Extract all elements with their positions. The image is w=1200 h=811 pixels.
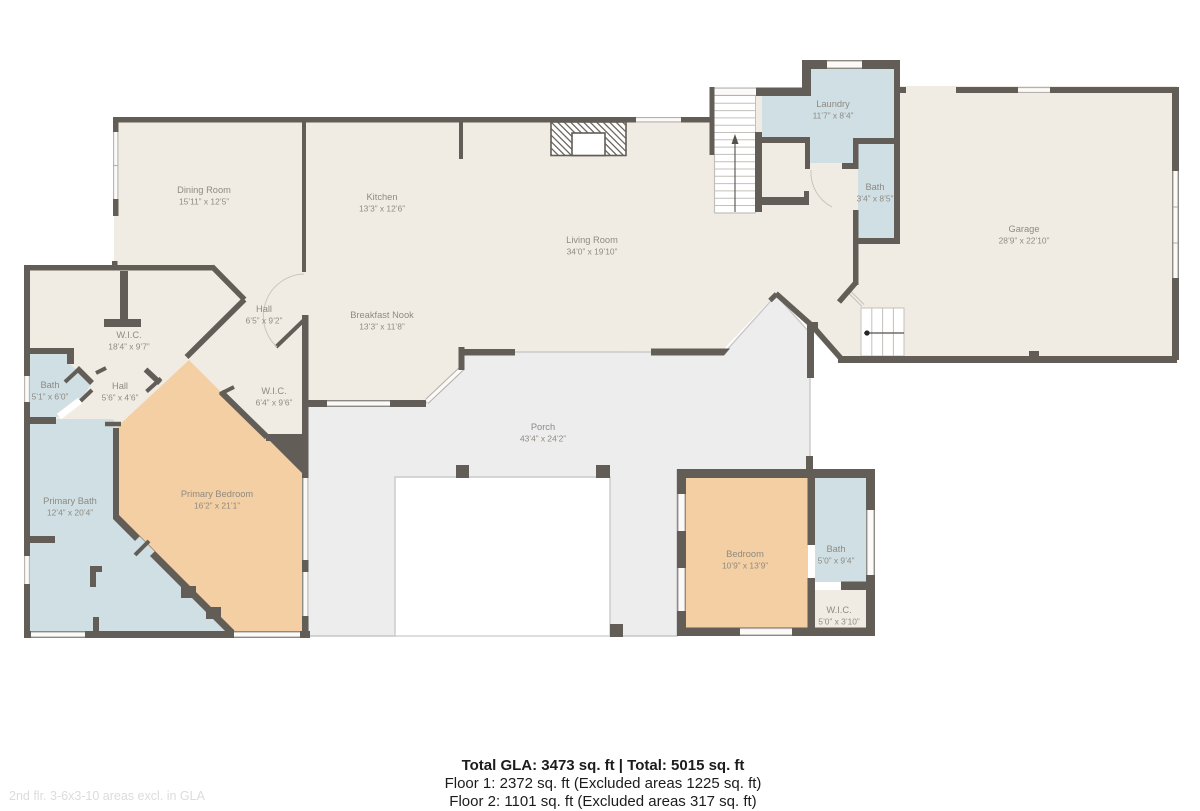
svg-text:5’6” x 4’6”: 5’6” x 4’6”: [102, 393, 139, 403]
svg-text:10’9” x 13’9”: 10’9” x 13’9”: [722, 561, 768, 571]
svg-text:W.I.C.: W.I.C.: [826, 605, 851, 615]
svg-text:Hall: Hall: [256, 304, 272, 314]
svg-text:11’7” x 8’4”: 11’7” x 8’4”: [813, 111, 854, 121]
svg-text:Hall: Hall: [112, 381, 128, 391]
svg-text:Kitchen: Kitchen: [366, 192, 397, 202]
svg-text:3’4” x 8’5”: 3’4” x 8’5”: [857, 194, 894, 204]
svg-text:13’3” x 11’8”: 13’3” x 11’8”: [359, 322, 405, 332]
svg-text:Living Room: Living Room: [566, 235, 618, 245]
svg-text:13’3” x 12’6”: 13’3” x 12’6”: [359, 204, 405, 214]
svg-text:Bath: Bath: [826, 544, 845, 554]
svg-text:28’9” x 22’10”: 28’9” x 22’10”: [999, 236, 1050, 246]
svg-text:Primary Bath: Primary Bath: [43, 496, 97, 506]
svg-text:5’0” x 9’4”: 5’0” x 9’4”: [818, 556, 855, 566]
svg-text:Bath: Bath: [40, 380, 59, 390]
svg-text:15’11” x 12’5”: 15’11” x 12’5”: [179, 197, 229, 207]
svg-text:Laundry: Laundry: [816, 99, 850, 109]
svg-text:16’2” x 21’1”: 16’2” x 21’1”: [194, 501, 240, 511]
svg-text:43’4” x 24’2”: 43’4” x 24’2”: [520, 434, 566, 444]
svg-text:6’4” x 9’6”: 6’4” x 9’6”: [256, 398, 293, 408]
svg-text:18’4” x 9’7”: 18’4” x 9’7”: [108, 342, 150, 352]
svg-text:5’0” x 3’10”: 5’0” x 3’10”: [818, 617, 860, 627]
svg-text:W.I.C.: W.I.C.: [261, 386, 286, 396]
svg-text:Bedroom: Bedroom: [726, 549, 764, 559]
svg-text:34’0” x 19’10”: 34’0” x 19’10”: [567, 247, 618, 257]
svg-text:5’1” x 6’0”: 5’1” x 6’0”: [32, 392, 69, 402]
svg-text:6’5” x 9’2”: 6’5” x 9’2”: [246, 316, 283, 326]
svg-text:W.I.C.: W.I.C.: [116, 330, 141, 340]
svg-text:Bath: Bath: [865, 182, 884, 192]
svg-text:Breakfast Nook: Breakfast Nook: [350, 310, 414, 320]
svg-text:12’4” x 20’4”: 12’4” x 20’4”: [47, 508, 93, 518]
svg-text:Primary Bedroom: Primary Bedroom: [181, 489, 254, 499]
svg-text:Dining Room: Dining Room: [177, 185, 231, 195]
svg-text:Garage: Garage: [1008, 224, 1039, 234]
svg-text:Porch: Porch: [531, 422, 555, 432]
